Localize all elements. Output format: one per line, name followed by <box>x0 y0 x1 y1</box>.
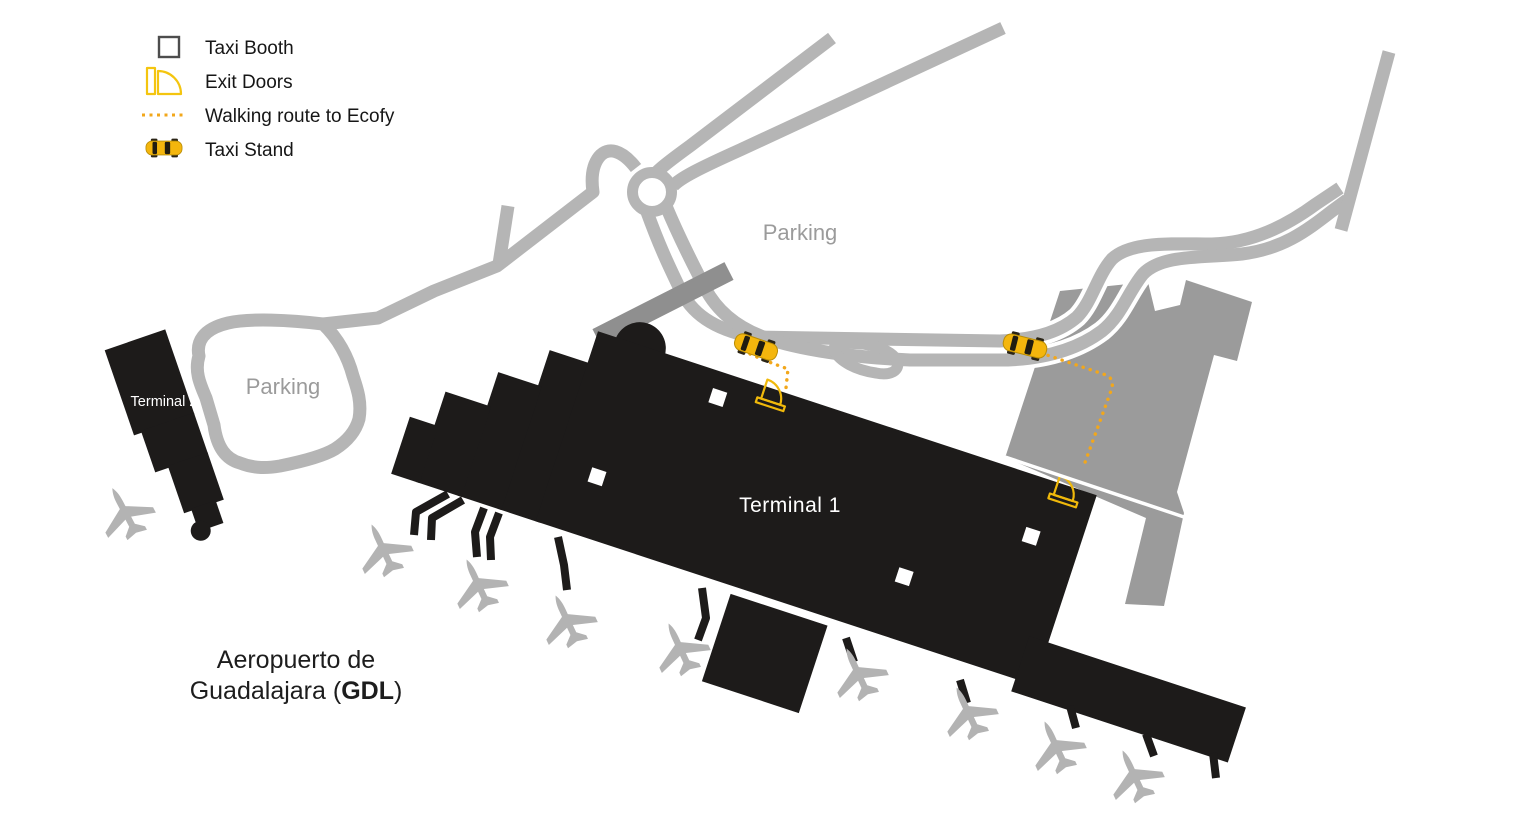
terminal1-south-annex <box>702 594 828 713</box>
legend-exit-doors-label: Exit Doors <box>205 72 293 93</box>
terminal1-east-wing <box>1011 636 1246 762</box>
legend-taxi-stand-label: Taxi Stand <box>205 140 294 161</box>
airplane-icon <box>347 513 418 584</box>
taxi-stand-icon <box>146 139 182 158</box>
map-title: Aeropuerto de Guadalajara (GDL) <box>190 646 403 705</box>
exit-door-icon <box>147 68 181 94</box>
road-northeast <box>1341 52 1389 230</box>
airplane-icon <box>932 676 1003 747</box>
legend-taxi-booth-label: Taxi Booth <box>205 38 294 59</box>
road-west-spur <box>499 206 508 264</box>
parking-label-terminal2: Parking <box>246 374 321 399</box>
airport-map: Parking Parking Terminal 1 Terminal 2 Ta… <box>0 0 1531 834</box>
terminal2-label: Terminal 2 <box>131 394 198 410</box>
taxi-booth-icon <box>159 37 179 57</box>
airport-code: GDL <box>341 677 394 705</box>
airplane-icon <box>442 548 513 619</box>
title-line2: Guadalajara (GDL) <box>190 677 403 705</box>
legend: Taxi Booth Exit Doors Walking route to E… <box>142 37 395 161</box>
road-access-lower <box>673 28 1003 186</box>
airplane-icon <box>822 637 893 708</box>
title-line1: Aeropuerto de <box>217 646 375 674</box>
map-canvas: Parking Parking Terminal 1 Terminal 2 Ta… <box>0 0 1531 834</box>
parking-label-top: Parking <box>763 220 838 245</box>
airplane-icon <box>531 584 602 655</box>
airplane-icon <box>88 475 161 547</box>
airplane-icon <box>1098 739 1169 810</box>
legend-walking-route-label: Walking route to Ecofy <box>205 106 395 127</box>
terminal1-label: Terminal 1 <box>739 494 841 517</box>
road-west <box>323 151 636 324</box>
roundabout <box>633 173 672 212</box>
airplane-icon <box>1020 710 1091 781</box>
